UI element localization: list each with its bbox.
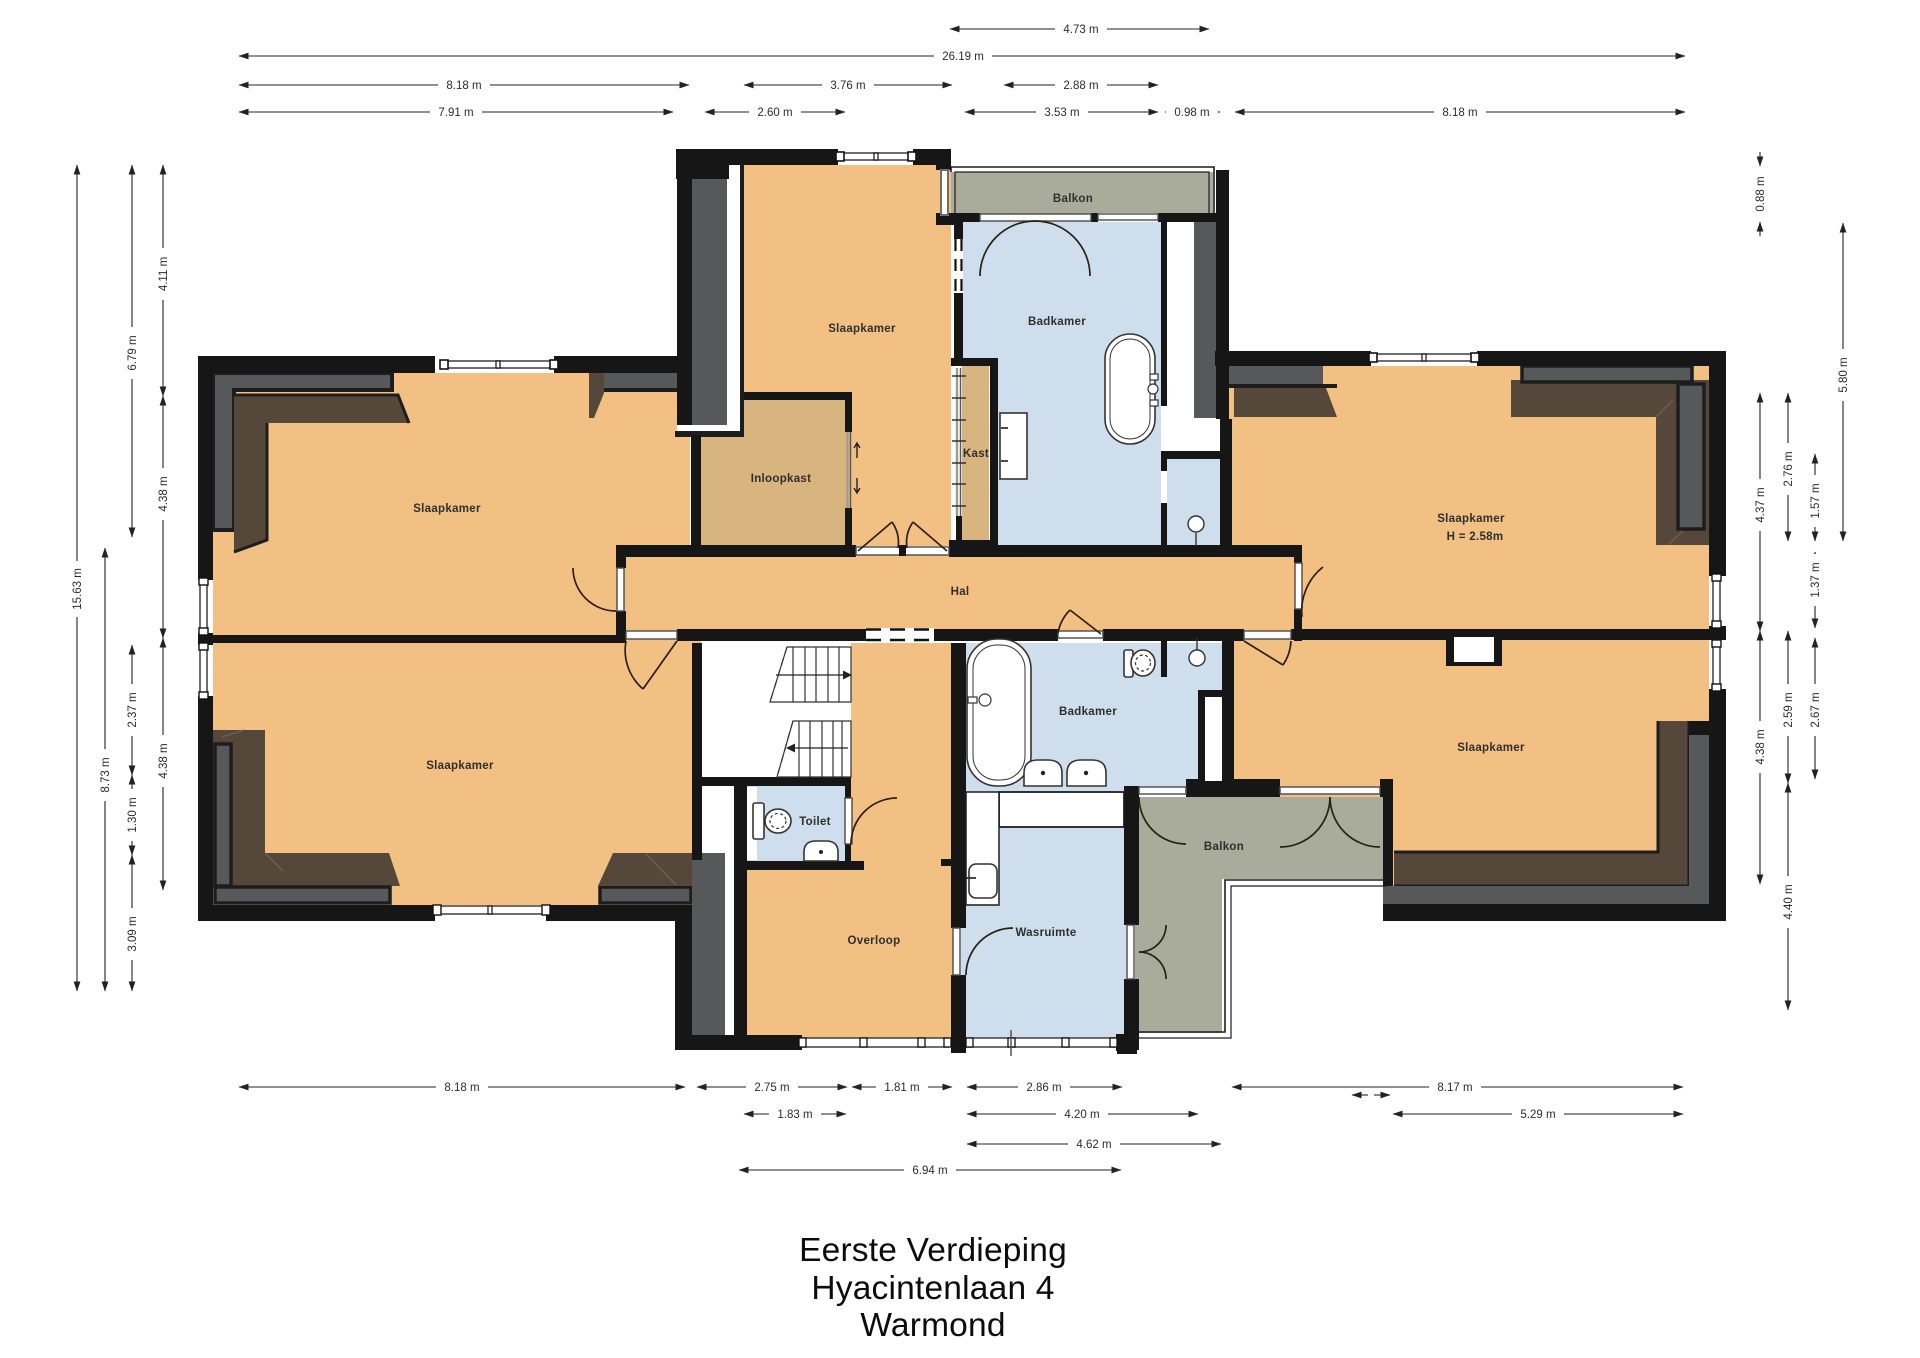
- svg-text:6.94 m: 6.94 m: [912, 1165, 947, 1177]
- svg-text:2.59 m: 2.59 m: [1783, 692, 1795, 727]
- svg-text:4.38 m: 4.38 m: [158, 743, 170, 778]
- svg-text:2.88 m: 2.88 m: [1063, 80, 1098, 92]
- svg-text:Slaapkamer: Slaapkamer: [828, 323, 896, 335]
- svg-text:Balkon: Balkon: [1053, 193, 1093, 205]
- svg-text:Inloopkast: Inloopkast: [751, 473, 812, 485]
- svg-text:1.30 m: 1.30 m: [127, 797, 139, 832]
- svg-text:H = 2.58m: H = 2.58m: [1447, 531, 1504, 543]
- svg-text:3.76 m: 3.76 m: [830, 80, 865, 92]
- svg-text:4.11 m: 4.11 m: [158, 257, 170, 291]
- svg-text:Wasruimte: Wasruimte: [1015, 927, 1076, 939]
- svg-text:Badkamer: Badkamer: [1059, 706, 1117, 718]
- svg-text:4.62 m: 4.62 m: [1076, 1139, 1111, 1151]
- svg-text:4.38 m: 4.38 m: [1755, 729, 1767, 764]
- svg-text:8.17 m: 8.17 m: [1437, 1082, 1472, 1094]
- svg-text:Kast: Kast: [963, 448, 989, 460]
- svg-text:4.38 m: 4.38 m: [158, 476, 170, 511]
- svg-text:3.53 m: 3.53 m: [1044, 107, 1079, 119]
- svg-text:Slaapkamer: Slaapkamer: [426, 760, 494, 772]
- svg-text:Toilet: Toilet: [799, 816, 831, 828]
- svg-text:3.09 m: 3.09 m: [127, 916, 139, 951]
- svg-text:Hyacintenlaan 4: Hyacintenlaan 4: [811, 1270, 1054, 1307]
- svg-text:7.91 m: 7.91 m: [438, 107, 473, 119]
- svg-text:6.79 m: 6.79 m: [127, 335, 139, 370]
- svg-text:5.29 m: 5.29 m: [1520, 1109, 1555, 1121]
- svg-text:15.63 m: 15.63 m: [72, 568, 84, 610]
- svg-text:2.86 m: 2.86 m: [1026, 1082, 1061, 1094]
- svg-text:1.81 m: 1.81 m: [884, 1082, 919, 1094]
- svg-text:2.60 m: 2.60 m: [757, 107, 792, 119]
- svg-text:2.76 m: 2.76 m: [1783, 451, 1795, 486]
- svg-text:Slaapkamer: Slaapkamer: [1437, 513, 1505, 525]
- svg-text:Slaapkamer: Slaapkamer: [1457, 742, 1525, 754]
- svg-text:8.18 m: 8.18 m: [446, 80, 481, 92]
- svg-text:Hal: Hal: [951, 586, 970, 598]
- svg-text:0.98 m: 0.98 m: [1174, 107, 1209, 119]
- svg-text:2.67 m: 2.67 m: [1810, 692, 1822, 727]
- svg-text:1.83 m: 1.83 m: [777, 1109, 812, 1121]
- svg-text:2.37 m: 2.37 m: [127, 692, 139, 727]
- svg-text:8.73 m: 8.73 m: [100, 757, 112, 792]
- svg-text:8.18 m: 8.18 m: [1442, 107, 1477, 119]
- svg-text:Eerste Verdieping: Eerste Verdieping: [799, 1232, 1067, 1269]
- svg-text:2.75 m: 2.75 m: [754, 1082, 789, 1094]
- svg-text:Slaapkamer: Slaapkamer: [413, 503, 481, 515]
- svg-text:1.37 m: 1.37 m: [1810, 562, 1822, 597]
- svg-text:Badkamer: Badkamer: [1028, 316, 1086, 328]
- svg-text:8.18 m: 8.18 m: [444, 1082, 479, 1094]
- svg-text:Warmond: Warmond: [860, 1307, 1005, 1344]
- svg-text:5.80 m: 5.80 m: [1838, 357, 1850, 392]
- svg-text:Balkon: Balkon: [1204, 841, 1244, 853]
- svg-text:0.88 m: 0.88 m: [1755, 176, 1767, 211]
- svg-text:26.19 m: 26.19 m: [942, 51, 984, 63]
- svg-text:Overloop: Overloop: [848, 935, 901, 947]
- svg-text:4.73 m: 4.73 m: [1063, 24, 1098, 36]
- svg-text:4.20 m: 4.20 m: [1064, 1109, 1099, 1121]
- svg-text:1.57 m: 1.57 m: [1810, 483, 1822, 518]
- svg-text:4.37 m: 4.37 m: [1755, 487, 1767, 522]
- svg-text:4.40 m: 4.40 m: [1783, 884, 1795, 919]
